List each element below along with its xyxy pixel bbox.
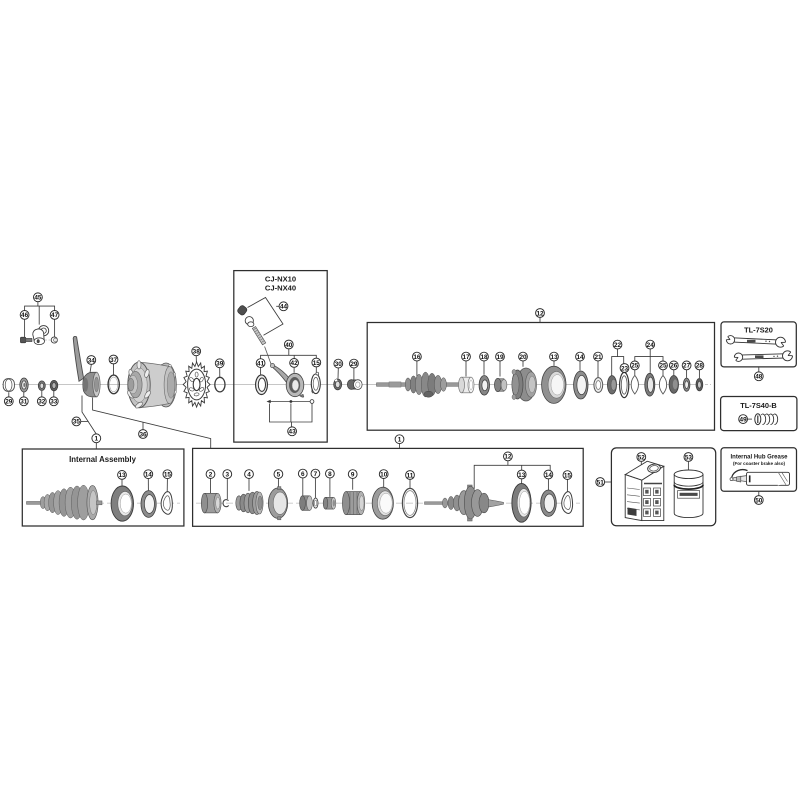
svg-text:30: 30 (335, 361, 343, 368)
svg-text:31: 31 (20, 399, 28, 406)
svg-text:16: 16 (413, 354, 421, 361)
svg-text:24: 24 (647, 342, 655, 349)
svg-text:29: 29 (350, 361, 358, 368)
svg-text:2: 2 (209, 471, 213, 478)
svg-text:Internal Assembly: Internal Assembly (69, 455, 137, 464)
svg-text:8: 8 (328, 471, 332, 478)
svg-text:44: 44 (280, 304, 288, 311)
svg-text:46: 46 (21, 312, 29, 319)
svg-text:41: 41 (257, 360, 265, 367)
svg-text:13: 13 (550, 354, 558, 361)
svg-text:32: 32 (38, 399, 46, 406)
svg-text:14: 14 (545, 472, 553, 479)
svg-text:47: 47 (51, 312, 59, 319)
svg-text:CJ-NX40: CJ-NX40 (265, 283, 296, 292)
svg-text:7: 7 (314, 471, 318, 478)
svg-text:27: 27 (683, 363, 691, 370)
svg-text:TL-7S40-B: TL-7S40-B (740, 401, 777, 410)
svg-text:4: 4 (247, 471, 251, 478)
svg-text:14: 14 (145, 472, 153, 479)
svg-text:48: 48 (755, 374, 763, 381)
svg-text:25: 25 (631, 363, 639, 370)
svg-text:43: 43 (289, 429, 297, 436)
svg-text:14: 14 (576, 354, 584, 361)
svg-text:10: 10 (380, 471, 388, 478)
svg-text:52: 52 (638, 454, 646, 461)
svg-text:5: 5 (277, 471, 281, 478)
svg-text:26: 26 (670, 363, 678, 370)
svg-text:6: 6 (301, 471, 305, 478)
svg-text:19: 19 (496, 354, 504, 361)
svg-text:37: 37 (110, 357, 118, 364)
svg-text:12: 12 (536, 310, 544, 317)
svg-text:40: 40 (285, 342, 293, 349)
svg-text:39: 39 (216, 361, 224, 368)
svg-text:15: 15 (564, 472, 572, 479)
svg-text:12: 12 (504, 454, 512, 461)
svg-text:23: 23 (621, 365, 629, 372)
svg-text:1: 1 (95, 436, 99, 443)
svg-text:15: 15 (313, 360, 321, 367)
svg-text:51: 51 (597, 479, 605, 486)
svg-text:45: 45 (34, 295, 42, 302)
svg-text:Internal Hub Grease: Internal Hub Grease (730, 454, 788, 460)
svg-text:28: 28 (696, 363, 704, 370)
svg-text:9: 9 (351, 471, 355, 478)
svg-text:35: 35 (73, 419, 81, 426)
svg-text:34: 34 (88, 357, 96, 364)
svg-text:CJ-NX10: CJ-NX10 (265, 274, 296, 283)
svg-text:50: 50 (755, 497, 763, 504)
svg-text:3: 3 (226, 471, 230, 478)
svg-text:13: 13 (118, 472, 126, 479)
svg-text:38: 38 (193, 349, 201, 356)
svg-text:18: 18 (480, 354, 488, 361)
svg-text:1: 1 (398, 437, 402, 444)
svg-text:22: 22 (614, 342, 622, 349)
svg-text:42: 42 (291, 360, 299, 367)
svg-text:20: 20 (519, 354, 527, 361)
svg-text:TL-7S20: TL-7S20 (744, 325, 773, 334)
svg-text:49: 49 (740, 416, 748, 423)
svg-text:29: 29 (5, 399, 13, 406)
svg-text:17: 17 (462, 354, 470, 361)
svg-text:53: 53 (685, 454, 693, 461)
svg-text:15: 15 (164, 472, 172, 479)
svg-text:25: 25 (659, 363, 667, 370)
svg-text:13: 13 (518, 472, 526, 479)
svg-text:36: 36 (139, 431, 147, 438)
svg-text:(For coaster brake also): (For coaster brake also) (733, 461, 786, 466)
svg-text:21: 21 (594, 354, 602, 361)
svg-text:11: 11 (407, 472, 414, 479)
svg-text:33: 33 (50, 399, 58, 406)
